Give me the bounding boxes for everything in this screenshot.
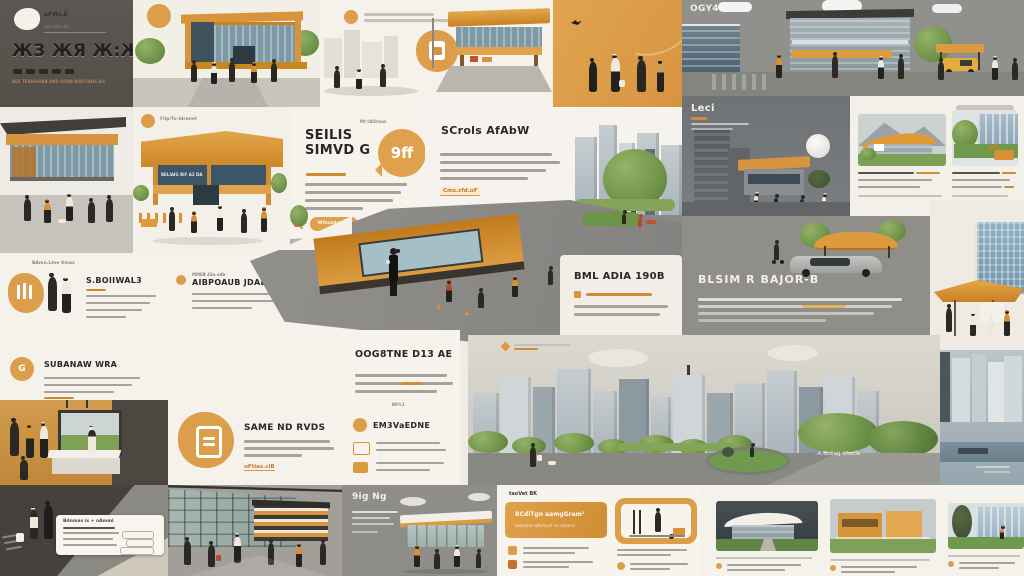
low-building — [744, 169, 804, 195]
cloud — [932, 4, 962, 13]
base-line — [10, 177, 114, 181]
excavator — [994, 150, 1014, 160]
person — [30, 511, 38, 539]
slide-dark-box: Bdnmas is + nAmml — [0, 485, 168, 576]
text-line — [858, 195, 942, 197]
info-box: Bdnmas is + nAmml — [56, 515, 164, 555]
link-text: uFtias.ciB — [244, 464, 275, 471]
text-line — [727, 564, 801, 566]
slide-title: 9ig Ng — [352, 493, 387, 503]
slide-pavilion-car: BLSIM R BAJOR-B — [682, 216, 930, 344]
orange-building — [886, 511, 922, 539]
person — [217, 209, 223, 231]
person — [229, 62, 235, 82]
striped-building — [254, 505, 328, 541]
moon — [806, 134, 830, 158]
person — [208, 545, 215, 567]
caption-rule — [948, 555, 1020, 557]
banner-line2: saanmas wAsmpcf vs.camans — [515, 523, 575, 528]
logo-icon — [14, 8, 40, 30]
lawn — [830, 539, 936, 553]
badge-row — [52, 69, 61, 74]
awning-slab — [936, 44, 984, 53]
text-line — [440, 153, 552, 156]
tower — [952, 358, 970, 422]
cloud — [718, 2, 752, 12]
tower — [972, 354, 986, 422]
person — [106, 199, 113, 222]
feature-badge — [8, 273, 44, 313]
tree-band — [468, 431, 508, 453]
person — [970, 316, 976, 336]
text-line — [244, 447, 334, 450]
pavilion-roof — [448, 8, 550, 27]
text-line — [952, 179, 1010, 181]
door-icon-line — [203, 443, 215, 446]
sign — [874, 144, 884, 151]
person-walker — [530, 447, 536, 467]
slide-title: SCrols AfAbW — [441, 125, 530, 137]
canopy-pole — [954, 300, 956, 336]
text-line — [698, 312, 874, 315]
orange-awning — [792, 50, 892, 58]
person — [44, 203, 51, 223]
text-line — [355, 390, 437, 393]
person — [446, 284, 452, 302]
door-icon-line — [203, 437, 215, 440]
boat — [958, 448, 988, 454]
text-line — [244, 454, 302, 457]
text-line — [523, 552, 575, 554]
text-line — [376, 442, 440, 444]
pavilion-band — [456, 47, 542, 55]
slide-oog-text: OOG8TNE D13 AE B9%1 EM3VaEDNE — [342, 330, 460, 485]
accent-dot — [353, 418, 367, 432]
interior-glow — [12, 147, 36, 177]
child — [622, 214, 626, 224]
text-line — [691, 123, 749, 125]
caption-text: Flip/To-Idronet — [160, 117, 197, 122]
slide-storefront — [0, 107, 133, 253]
divider-line — [44, 32, 106, 33]
door-icon — [196, 426, 222, 458]
text-line — [376, 462, 444, 464]
window-band — [842, 519, 878, 527]
text-line — [841, 566, 917, 568]
person — [655, 512, 661, 532]
accent-line — [44, 397, 74, 399]
slide-banner: taoVet BK BCdiTgn aamgGram¹ saanmas wAsm… — [497, 485, 700, 576]
text-line — [440, 177, 528, 180]
text-line — [305, 183, 407, 186]
child — [638, 218, 642, 227]
feature1-title: S.BOIIWAL3 — [86, 277, 142, 286]
photo-card — [716, 501, 818, 551]
person — [898, 58, 904, 79]
person — [611, 58, 620, 92]
cloud — [468, 493, 490, 501]
logo-caption: aPИʌ.E — [44, 11, 68, 18]
slide-park-city: .A Bidiag dAscia — [468, 335, 940, 485]
person — [988, 318, 994, 338]
text-line — [63, 538, 113, 540]
text-line — [514, 348, 538, 350]
text-line — [574, 313, 660, 316]
post — [888, 246, 890, 258]
person — [191, 64, 197, 82]
car-cabin — [810, 258, 850, 266]
pendant-light — [86, 400, 88, 408]
text-line — [44, 377, 140, 379]
building-column — [185, 20, 191, 66]
text-line — [841, 571, 895, 573]
ground — [682, 202, 850, 216]
person — [476, 553, 481, 568]
ground-shadow — [402, 569, 488, 574]
person — [10, 422, 19, 456]
person — [169, 211, 175, 231]
roundabout — [706, 447, 790, 475]
slide-orange-people — [553, 0, 682, 110]
person — [478, 292, 484, 308]
text-line — [63, 532, 119, 534]
accent-dot — [344, 10, 358, 24]
slide-title: ЖЗ ЖЯ Ж:Ж — [12, 42, 133, 61]
caption-dot — [716, 563, 722, 569]
play-equipment — [646, 220, 656, 224]
filled-badge — [353, 462, 368, 473]
swoosh-line — [613, 0, 682, 65]
accent-tick — [691, 117, 707, 120]
feature3-title: SUBANAW WRA — [44, 361, 117, 370]
person — [548, 270, 553, 285]
illustration-card — [615, 498, 697, 544]
text-line — [192, 307, 252, 309]
person — [88, 202, 95, 223]
orange-fascia — [6, 134, 118, 145]
scooter-wheel — [780, 260, 784, 264]
dark-trees — [808, 170, 830, 188]
text-line — [630, 568, 670, 570]
title-line2: SIMVD G — [305, 144, 370, 158]
text-line — [574, 305, 668, 308]
person — [454, 549, 460, 567]
person — [512, 280, 518, 297]
text-line — [86, 316, 126, 318]
scooter-wheel — [772, 260, 776, 264]
entrance — [193, 185, 219, 205]
person — [589, 62, 597, 92]
icon-circle — [416, 30, 458, 72]
lamp-pole — [432, 18, 434, 68]
ground-shadow — [153, 237, 263, 245]
slide-title: BML ADIA 190B — [574, 271, 665, 282]
pavilion-roof — [814, 232, 898, 250]
tree-band — [554, 433, 594, 453]
slide-title: BLSIM R BAJOR-B — [698, 274, 819, 286]
slide-title: OGY4 — [690, 5, 719, 15]
caption-text: Mt tAStmas — [360, 119, 386, 124]
person — [26, 428, 34, 458]
accent-box — [470, 56, 478, 62]
person — [191, 215, 197, 233]
sketch-building — [384, 36, 398, 78]
hedge — [582, 212, 640, 226]
text-line — [352, 531, 378, 533]
card-icon-inner — [432, 47, 442, 55]
text-line — [376, 469, 430, 471]
person — [334, 70, 340, 88]
caption-text: taoVet BK — [509, 491, 537, 497]
subtitle: EM3VaEDNE — [373, 422, 430, 431]
text-line — [952, 186, 1002, 188]
badge-glyph — [17, 285, 20, 299]
dark-tree — [952, 505, 972, 539]
text-line — [44, 391, 114, 393]
hair-bun — [396, 249, 400, 253]
accent-box — [482, 57, 492, 62]
person — [40, 426, 48, 458]
text-line — [402, 382, 422, 385]
slide-bml-text: BML ADIA 190B — [560, 255, 682, 340]
text-line — [916, 172, 940, 174]
person — [380, 68, 386, 87]
text-line — [86, 309, 142, 311]
person — [251, 66, 257, 83]
text-line — [858, 179, 932, 181]
vehicle-window — [960, 60, 972, 66]
building: BELIAIG BIF A2 DA — [141, 131, 283, 207]
badge-row — [13, 69, 22, 74]
photo-card — [830, 499, 936, 553]
bush — [133, 185, 149, 201]
footnote-text: BES TESHIIGIAB AND SORN BOSTIAHS AG — [12, 79, 105, 84]
text-line — [698, 298, 902, 301]
person — [241, 213, 247, 233]
photo-card — [858, 114, 946, 166]
text-line — [352, 517, 390, 519]
person — [1012, 62, 1018, 80]
feature2-top: MMEB 43a odb — [192, 272, 225, 277]
text-line — [44, 384, 132, 386]
outline-pill — [120, 547, 154, 555]
caption-dot — [830, 565, 836, 571]
person — [66, 197, 73, 221]
text-line — [952, 172, 1000, 174]
text-line — [959, 567, 999, 569]
bullet-icon — [508, 546, 517, 555]
person — [356, 72, 362, 89]
slide-pavilion-intro — [320, 0, 553, 110]
tower — [767, 371, 797, 453]
crate — [141, 219, 157, 227]
person — [20, 460, 28, 480]
counter-top — [47, 450, 122, 458]
barista — [88, 430, 96, 452]
building-column — [295, 20, 301, 66]
scooter-person — [774, 244, 779, 260]
person — [637, 60, 646, 92]
slide-leci: Leci — [682, 96, 850, 216]
slide-door-card: SAME ND RVDS uFtias.ciB — [168, 400, 342, 485]
badge-row — [65, 69, 74, 74]
caption-rule — [830, 559, 930, 561]
mid-building — [786, 10, 914, 72]
tree — [135, 38, 165, 64]
building-entrance — [233, 46, 255, 64]
feature2-dot — [176, 275, 186, 285]
slide-canopy-right — [930, 200, 1024, 344]
slide-interior-counter — [0, 400, 168, 485]
bullet-dot — [617, 562, 625, 570]
person — [1004, 314, 1010, 336]
text-line — [858, 186, 920, 188]
sketch-building — [362, 42, 382, 78]
banner-line1: BCdiTgn aamgGram¹ — [515, 511, 585, 518]
wheel — [862, 269, 870, 277]
box-header: Bdnmas is + nAmml — [63, 519, 114, 524]
orange-banner: BCdiTgn aamgGram¹ saanmas wAsmpcf vs.cam… — [505, 502, 607, 538]
counter-front — [52, 458, 120, 474]
badge-glyph — [29, 285, 32, 299]
person — [434, 553, 440, 569]
glass-front — [732, 525, 794, 539]
text-line — [952, 195, 1008, 197]
tree-mass — [868, 421, 938, 457]
slide-campus — [133, 0, 320, 107]
text-line — [617, 554, 671, 556]
square-icon — [574, 291, 581, 298]
pendant-light — [66, 400, 68, 408]
tree-mass — [798, 413, 878, 453]
dark-tower — [940, 352, 950, 422]
caption-text: BAmn.LIne Vmas — [32, 261, 75, 266]
badge-row — [26, 69, 35, 74]
text-line — [1004, 186, 1014, 188]
text-line — [586, 293, 652, 296]
text-line — [698, 319, 826, 322]
speech-bubble: 9ff — [378, 129, 425, 177]
dog — [58, 219, 66, 223]
person — [62, 281, 71, 313]
text-line — [86, 295, 156, 297]
orange-building — [838, 513, 882, 539]
glass-floors — [790, 18, 910, 70]
text-line — [617, 549, 687, 551]
tote-bag — [537, 455, 542, 461]
text-line — [959, 562, 1015, 564]
accent-circle — [147, 4, 171, 28]
text-line — [976, 466, 1010, 468]
bullet-icon — [508, 560, 517, 569]
ground-line — [629, 535, 685, 537]
roof-slab — [0, 117, 126, 135]
glass-front — [406, 525, 484, 547]
text-line — [86, 302, 150, 304]
bubble-tail — [368, 163, 382, 177]
text-line — [630, 563, 688, 565]
text-line — [355, 374, 447, 377]
text-line — [305, 191, 401, 194]
ground-shadow — [436, 66, 552, 92]
person — [657, 64, 664, 92]
caption-rule — [716, 557, 812, 559]
bird-icon — [571, 20, 582, 25]
outline-pill — [126, 539, 154, 547]
slide-atrium — [168, 485, 342, 576]
antenna — [687, 365, 690, 375]
accent-dot — [141, 114, 155, 128]
photo-card — [952, 110, 1018, 166]
person — [24, 199, 31, 221]
arm-cuff — [386, 260, 390, 264]
badge-blob — [178, 412, 234, 468]
person — [878, 60, 884, 79]
person — [271, 63, 277, 82]
text-line — [984, 471, 1010, 473]
person — [234, 537, 241, 563]
slide-dark-title: aPИʌ.E atst tote dm ЖЗ ЖЯ Ж:Ж BES TESHII… — [0, 0, 133, 107]
ladder — [633, 510, 635, 534]
text-line — [802, 305, 846, 308]
person — [776, 58, 782, 78]
glass-band — [748, 174, 800, 184]
text-line — [376, 449, 446, 451]
text-line — [727, 569, 785, 571]
bag — [619, 80, 625, 87]
outline-badge — [353, 442, 370, 455]
pavilion-glass — [456, 27, 542, 47]
badge-row — [39, 69, 48, 74]
person — [48, 277, 57, 311]
text-line — [244, 440, 330, 443]
text-line — [352, 523, 394, 525]
person — [832, 56, 838, 78]
person — [414, 549, 420, 567]
caption-dot — [948, 561, 954, 567]
text-line — [514, 344, 570, 346]
red-bag — [216, 555, 221, 561]
link-text: Cms.cfd.uF — [440, 187, 480, 196]
slide-title: SAME ND RVDS — [244, 424, 325, 434]
legs — [390, 281, 397, 296]
palm — [271, 173, 287, 193]
awning-pole — [978, 52, 980, 70]
text-line — [352, 511, 398, 513]
person — [1000, 529, 1004, 539]
woman-figure — [386, 248, 400, 296]
card-panel — [621, 504, 691, 538]
bush — [860, 148, 876, 160]
accent-line — [306, 173, 346, 176]
ladder — [639, 510, 641, 534]
feature3-badge: G — [10, 357, 34, 381]
outline-pill — [122, 531, 154, 539]
cloud — [400, 497, 426, 506]
tag-diamond — [501, 342, 511, 352]
person — [211, 66, 217, 84]
text-line — [63, 544, 117, 546]
glass-building — [682, 24, 740, 74]
sign-text: BELIAIG BIF A2 DA — [161, 172, 202, 177]
text-line — [523, 547, 589, 549]
crosswalk — [712, 74, 772, 90]
person — [320, 543, 326, 565]
roundabout-tree — [722, 447, 734, 457]
person — [296, 547, 302, 567]
body — [389, 255, 398, 281]
road-label: .A Bidiag dAscia — [816, 451, 860, 457]
